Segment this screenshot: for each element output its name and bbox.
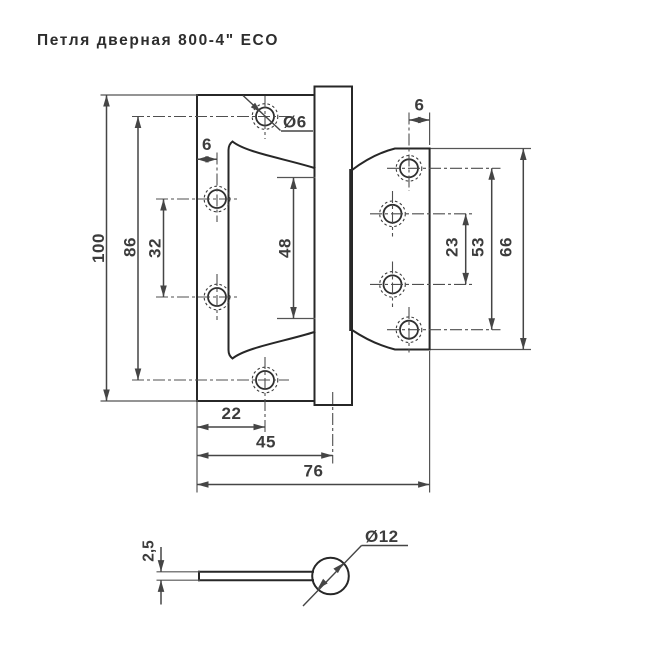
leader-arrow-lower xyxy=(318,579,328,589)
dim-label-45: 45 xyxy=(256,433,276,452)
extension-lines xyxy=(101,95,532,493)
dim-right-inner-holes: 23 xyxy=(443,214,466,285)
technical-drawing: Петля дверная 800-4" ECO xyxy=(0,0,650,650)
hole-right-inner-top xyxy=(370,191,474,237)
leader-barrel-diameter: Ø12 xyxy=(303,527,408,606)
dim-label-66: 66 xyxy=(497,237,516,257)
dim-left-hole-offset: 6 xyxy=(197,135,217,159)
front-view-dimensions: 100 86 32 6 Ø6 48 xyxy=(89,95,531,493)
right-leaf-outline xyxy=(352,149,430,350)
dim-hole-from-edge: 22 xyxy=(197,404,265,427)
dim-leaf-thickness: 2,5 xyxy=(141,540,201,605)
dim-label-23: 23 xyxy=(443,237,462,257)
hole-right-inner-bottom xyxy=(370,262,474,308)
dim-label-32: 32 xyxy=(146,238,165,258)
leaf-profile xyxy=(199,572,313,580)
dim-right-hole-offset: 6 xyxy=(409,96,430,121)
dim-label-86: 86 xyxy=(121,237,140,257)
leader-hole-diameter: Ø6 xyxy=(243,96,313,132)
hole-right-bottom xyxy=(387,307,501,353)
side-view: 2,5 Ø12 xyxy=(141,527,409,606)
dim-label-hole-dia: Ø6 xyxy=(283,113,307,132)
dim-label-barrel-dia: Ø12 xyxy=(365,527,399,546)
dim-label-76: 76 xyxy=(304,462,324,481)
hole-left-bottom xyxy=(132,357,289,434)
dim-label-100: 100 xyxy=(89,233,108,263)
dim-label-6-left: 6 xyxy=(202,135,212,154)
hinge-barrel xyxy=(315,87,353,406)
dim-right-leaf-height: 66 xyxy=(497,149,524,350)
hole-right-top xyxy=(387,113,501,192)
dim-pin-axis: 45 xyxy=(197,433,333,456)
dim-overall-width: 76 xyxy=(197,462,430,485)
dim-left-inner-holes: 32 xyxy=(146,199,165,297)
leader-arrow-upper xyxy=(333,563,343,573)
dim-left-outer-holes: 86 xyxy=(121,117,140,381)
left-leaf-outline xyxy=(197,95,315,401)
dim-knuckle-length: 48 xyxy=(276,178,295,319)
drawing-title: Петля дверная 800-4" ECO xyxy=(37,32,279,49)
hole-left-top xyxy=(132,96,289,139)
dim-label-53: 53 xyxy=(469,237,488,257)
dim-label-48: 48 xyxy=(276,238,295,258)
dim-label-6-right: 6 xyxy=(415,96,425,115)
dim-right-outer-holes: 53 xyxy=(469,168,492,329)
dim-label-2-5: 2,5 xyxy=(141,540,158,562)
front-view xyxy=(132,87,501,464)
screw-holes xyxy=(132,96,501,434)
dim-overall-height: 100 xyxy=(89,95,108,401)
dim-label-22: 22 xyxy=(222,404,242,423)
